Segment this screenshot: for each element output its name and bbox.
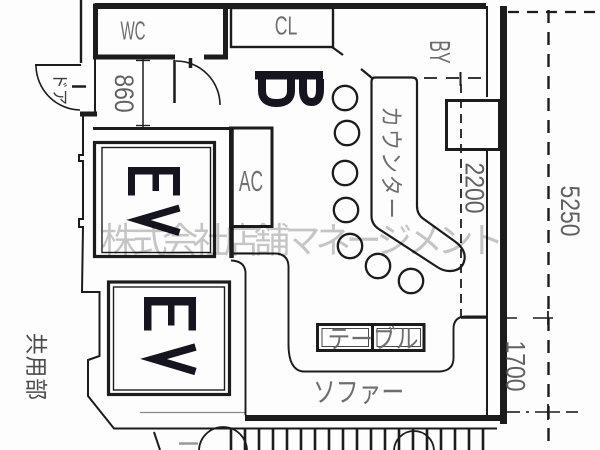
- svg-text:2200: 2200: [459, 162, 489, 213]
- svg-text:860: 860: [109, 74, 139, 112]
- svg-text:1700: 1700: [500, 340, 530, 391]
- svg-text:CL: CL: [275, 11, 298, 40]
- svg-text:BY: BY: [423, 40, 456, 63]
- svg-text:5250: 5250: [555, 185, 585, 236]
- svg-text:WC: WC: [120, 16, 145, 45]
- svg-text:AC: AC: [239, 166, 263, 199]
